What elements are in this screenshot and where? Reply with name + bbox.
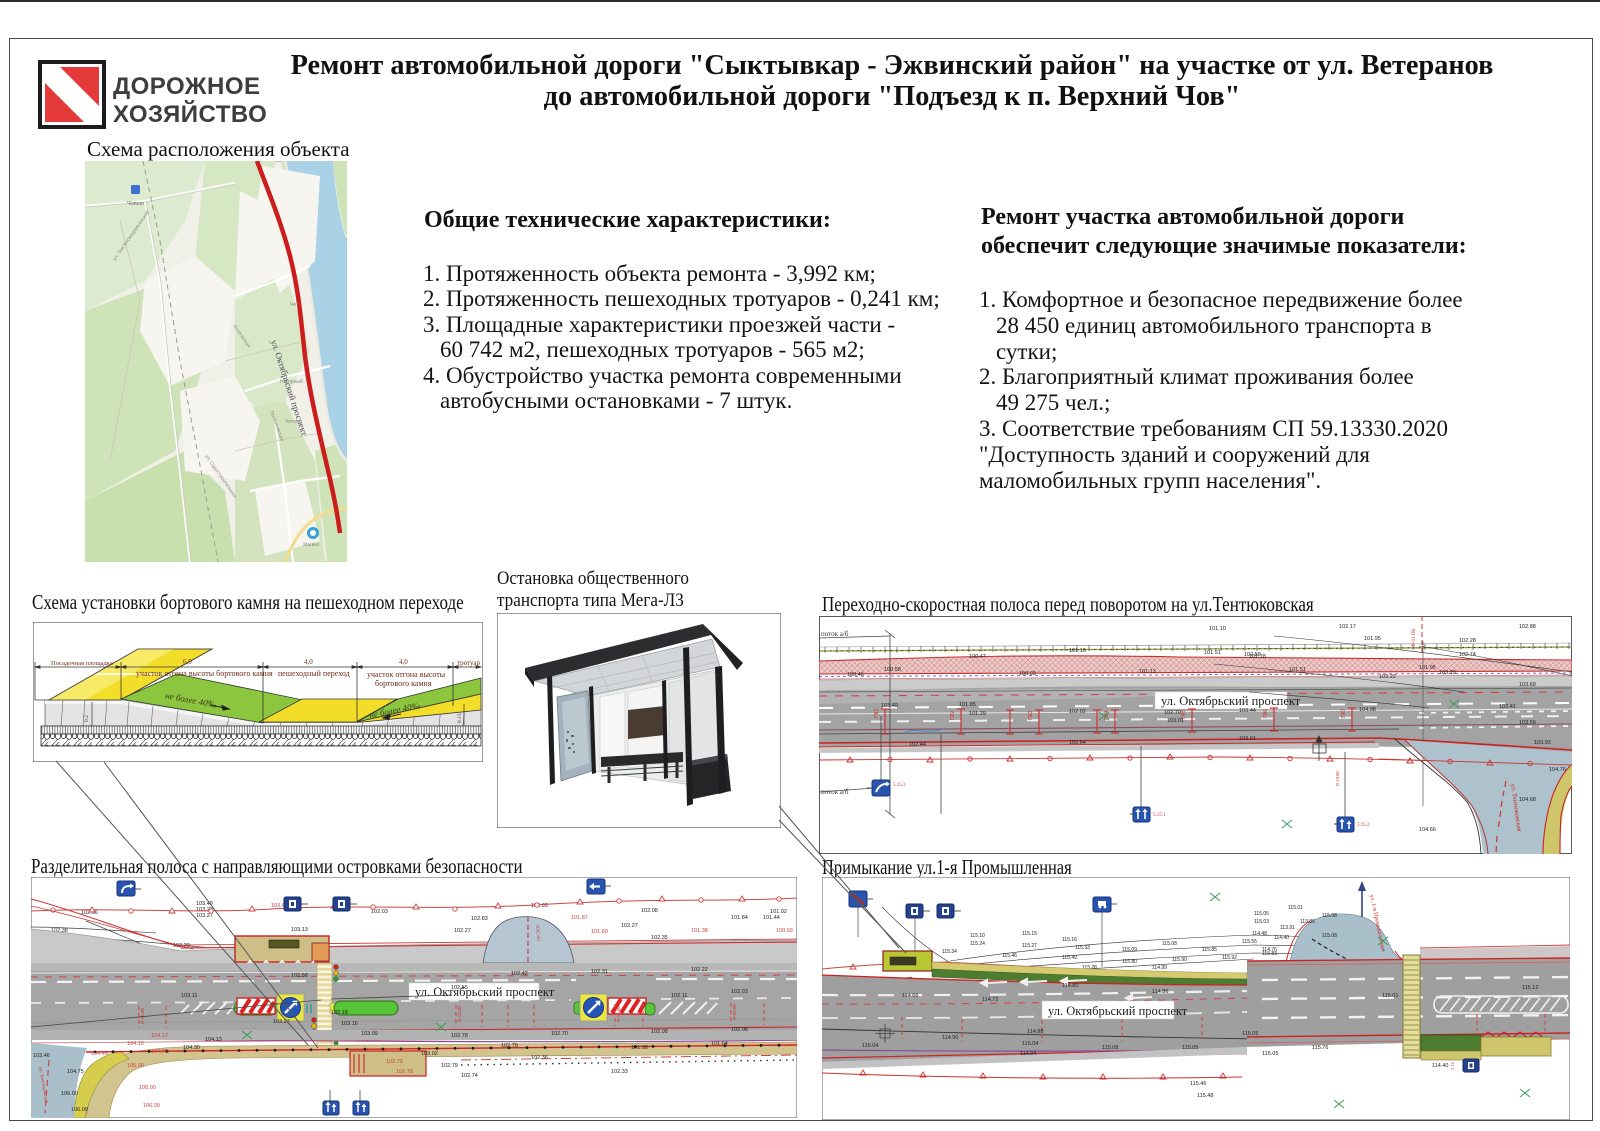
svg-text:5.16: 5.16 xyxy=(1450,1061,1455,1070)
svg-text:114.66: 114.66 xyxy=(902,993,918,999)
svg-text:102.78: 102.78 xyxy=(451,1033,468,1039)
svg-text:104.45: 104.45 xyxy=(91,1051,108,1057)
svg-text:104.75: 104.75 xyxy=(151,1049,168,1055)
svg-text:115.55: 115.55 xyxy=(1242,939,1257,945)
svg-text:101.78: 101.78 xyxy=(1249,654,1266,660)
svg-text:114.90: 114.90 xyxy=(942,1035,958,1041)
svg-text:Чит: Чит xyxy=(290,302,299,308)
svg-text:102.08: 102.08 xyxy=(731,1027,748,1033)
svg-text:103.27: 103.27 xyxy=(196,913,213,919)
svg-text:ул. Октябрьский проспект: ул. Октябрьский проспект xyxy=(1048,1004,1188,1018)
svg-text:101.87: 101.87 xyxy=(571,915,588,921)
svg-text:ПК7: ПК7 xyxy=(1341,708,1347,718)
svg-text:114.94: 114.94 xyxy=(1020,1051,1036,1057)
svg-text:4,0: 4,0 xyxy=(399,658,408,666)
svg-text:115.01: 115.01 xyxy=(1382,993,1398,999)
svg-text:101.13: 101.13 xyxy=(1139,669,1156,675)
svg-text:115.05: 115.05 xyxy=(1262,1051,1278,1057)
svg-text:101.13: 101.13 xyxy=(1069,648,1086,654)
svg-text:поток а/б: поток а/б xyxy=(821,788,849,796)
svg-text:103.44: 103.44 xyxy=(1239,708,1256,714)
svg-text:104.68: 104.68 xyxy=(1519,797,1536,803)
svg-text:102.44: 102.44 xyxy=(909,742,926,748)
svg-text:102.08: 102.08 xyxy=(651,1029,668,1035)
svg-text:114.40: 114.40 xyxy=(1274,935,1289,941)
svg-text:103.69: 103.69 xyxy=(1519,682,1536,688)
svg-text:102.03: 102.03 xyxy=(371,909,388,915)
svg-text:114.80: 114.80 xyxy=(1062,983,1078,989)
svg-text:102.17: 102.17 xyxy=(1339,624,1356,630)
svg-text:104.76: 104.76 xyxy=(1549,767,1566,773)
svg-text:104.66: 104.66 xyxy=(1419,827,1436,833)
svg-text:101.29: 101.29 xyxy=(969,711,986,717)
svg-text:Магнит: Магнит xyxy=(303,543,320,548)
svg-text:115.49: 115.49 xyxy=(1062,955,1077,961)
svg-text:5.15.1: 5.15.1 xyxy=(1153,813,1166,818)
svg-text:104.12: 104.12 xyxy=(151,1033,168,1039)
svg-text:101.98: 101.98 xyxy=(631,1045,648,1051)
svg-text:102.03: 102.03 xyxy=(731,989,748,995)
svg-text:115.08: 115.08 xyxy=(1322,933,1337,939)
svg-text:102.31: 102.31 xyxy=(591,969,608,975)
svg-text:114.99: 114.99 xyxy=(1152,965,1167,971)
svg-text:R-15.00: R-15.00 xyxy=(616,1005,621,1022)
svg-text:тротуар: тротуар xyxy=(457,659,481,667)
svg-text:102.02: 102.02 xyxy=(1069,709,1086,715)
svg-text:102.88: 102.88 xyxy=(1519,624,1536,630)
svg-text:113.86: 113.86 xyxy=(1300,919,1315,925)
svg-text:102.33: 102.33 xyxy=(611,1069,628,1075)
svg-text:101.85: 101.85 xyxy=(959,702,976,708)
svg-text:102.64: 102.64 xyxy=(1069,740,1086,746)
svg-text:114.48: 114.48 xyxy=(1252,931,1267,937)
svg-text:104.75: 104.75 xyxy=(67,1069,84,1075)
svg-text:106.09: 106.09 xyxy=(71,1107,88,1113)
svg-text:114.72: 114.72 xyxy=(982,997,998,1003)
svg-text:Читово: Читово xyxy=(285,419,302,425)
svg-text:R-15.00: R-15.00 xyxy=(457,1005,462,1022)
svg-text:115.01: 115.01 xyxy=(1288,905,1303,911)
svg-text:R-20.00: R-20.00 xyxy=(732,1003,737,1020)
svg-text:103.13: 103.13 xyxy=(291,927,308,933)
svg-text:104.30: 104.30 xyxy=(183,1045,200,1051)
svg-text:участок отгона высоты: участок отгона высоты xyxy=(367,670,446,679)
svg-text:102.78: 102.78 xyxy=(396,1069,413,1075)
svg-text:103.27: 103.27 xyxy=(273,1019,290,1025)
svg-text:103.59: 103.59 xyxy=(1519,720,1536,726)
svg-text:115.48: 115.48 xyxy=(1197,1093,1213,1099)
svg-text:104.10: 104.10 xyxy=(127,1041,144,1047)
svg-text:101.44: 101.44 xyxy=(763,915,780,921)
svg-text:4,0: 4,0 xyxy=(304,658,313,666)
svg-text:102.36: 102.36 xyxy=(531,1055,548,1061)
svg-text:115.08: 115.08 xyxy=(1322,913,1337,919)
svg-text:115.03: 115.03 xyxy=(1254,919,1269,925)
svg-text:106.00: 106.00 xyxy=(139,1085,156,1091)
svg-text:103.18: 103.18 xyxy=(331,1010,348,1016)
svg-text:100.58: 100.58 xyxy=(884,667,901,673)
svg-text:102.42: 102.42 xyxy=(511,971,528,977)
svg-text:102.11: 102.11 xyxy=(671,993,687,999)
svg-text:102.79: 102.79 xyxy=(501,1043,518,1049)
svg-text:115.04: 115.04 xyxy=(862,1043,878,1049)
svg-text:ул. Октябрьский проспект: ул. Октябрьский проспект xyxy=(1161,694,1301,708)
svg-text:поток а/б: поток а/б xyxy=(821,630,849,638)
svg-text:115.80: 115.80 xyxy=(1122,959,1137,965)
svg-text:115.34: 115.34 xyxy=(942,949,957,955)
svg-text:104.08: 104.08 xyxy=(1359,707,1376,713)
svg-text:5.15.3: 5.15.3 xyxy=(893,783,906,788)
svg-text:115.46: 115.46 xyxy=(1002,953,1017,959)
svg-text:103.29: 103.29 xyxy=(1439,670,1456,676)
svg-text:102.08: 102.08 xyxy=(641,908,658,914)
svg-text:115.24: 115.24 xyxy=(970,941,985,947)
svg-text:114.76: 114.76 xyxy=(1262,947,1277,953)
svg-text:100.47: 100.47 xyxy=(969,654,986,660)
svg-text:102.74: 102.74 xyxy=(1459,652,1476,658)
svg-text:106.09: 106.09 xyxy=(143,1103,160,1109)
svg-text:0.15: 0.15 xyxy=(457,713,463,723)
svg-text:105.00: 105.00 xyxy=(127,1063,144,1069)
svg-text:115.33: 115.33 xyxy=(1075,945,1090,951)
svg-text:R-10.00: R-10.00 xyxy=(1335,771,1340,786)
svg-text:101.38: 101.38 xyxy=(691,928,708,934)
svg-text:102.58: 102.58 xyxy=(291,973,308,979)
svg-text:113.91: 113.91 xyxy=(1280,925,1295,931)
svg-text:115.05: 115.05 xyxy=(1254,911,1269,917)
svg-text:ул. Октябрьский проспект: ул. Октябрьский проспект xyxy=(415,985,555,999)
svg-text:Нагорный: Нагорный xyxy=(280,378,303,385)
svg-text:100.46: 100.46 xyxy=(847,672,864,678)
svg-text:100.93: 100.93 xyxy=(776,928,793,934)
svg-text:102.27: 102.27 xyxy=(454,928,471,934)
svg-text:106.00: 106.00 xyxy=(61,1091,78,1097)
svg-text:Посадочная площадка: Посадочная площадка xyxy=(51,660,113,667)
svg-text:115.76: 115.76 xyxy=(1312,1045,1328,1051)
svg-text:ПК2: ПК2 xyxy=(950,710,956,720)
svg-text:ПК3: ПК3 xyxy=(1028,710,1034,720)
svg-text:102.28: 102.28 xyxy=(1459,638,1476,644)
svg-text:бортового камня: бортового камня xyxy=(375,679,432,688)
svg-text:103.02: 103.02 xyxy=(421,1051,438,1057)
svg-text:103.46: 103.46 xyxy=(33,1053,50,1059)
svg-text:Човью: Човью xyxy=(127,201,144,207)
svg-text:5.15.2: 5.15.2 xyxy=(1357,823,1370,828)
svg-text:103.11: 103.11 xyxy=(181,993,197,999)
svg-text:115.46: 115.46 xyxy=(1190,1081,1206,1087)
svg-text:104.13: 104.13 xyxy=(205,1037,222,1043)
svg-text:ПК6: ПК6 xyxy=(1263,708,1269,718)
svg-text:100.93: 100.93 xyxy=(1019,671,1036,677)
svg-text:101.10: 101.10 xyxy=(1209,626,1226,632)
svg-text:ПК1: ПК1 xyxy=(874,708,880,718)
svg-text:102.70: 102.70 xyxy=(1164,710,1181,716)
svg-text:6,0: 6,0 xyxy=(183,658,192,666)
svg-text:115.08: 115.08 xyxy=(1162,941,1177,947)
svg-text:102.79: 102.79 xyxy=(441,1063,458,1069)
svg-text:114.86: 114.86 xyxy=(1152,989,1168,995)
svg-text:101.95: 101.95 xyxy=(1364,636,1381,642)
svg-text:115.15: 115.15 xyxy=(1022,931,1037,937)
svg-text:0.2: 0.2 xyxy=(84,715,90,722)
svg-text:115.92: 115.92 xyxy=(1222,955,1237,961)
svg-text:101.95: 101.95 xyxy=(1419,665,1436,671)
svg-text:114.88: 114.88 xyxy=(1027,1029,1043,1035)
svg-text:115.16: 115.16 xyxy=(1062,937,1077,943)
svg-text:103.22: 103.22 xyxy=(1379,674,1396,680)
svg-text:101.02: 101.02 xyxy=(770,909,787,915)
svg-text:103.01: 103.01 xyxy=(1239,736,1256,742)
svg-text:103.16: 103.16 xyxy=(341,1021,358,1027)
svg-text:102.83: 102.83 xyxy=(471,916,488,922)
svg-text:R-25.00: R-25.00 xyxy=(140,1007,145,1024)
svg-text:102.55: 102.55 xyxy=(451,985,468,991)
svg-text:102.73: 102.73 xyxy=(386,1059,403,1065)
svg-text:102.22: 102.22 xyxy=(691,967,708,973)
svg-text:103.41: 103.41 xyxy=(1499,704,1516,710)
svg-text:101.60: 101.60 xyxy=(591,929,608,935)
svg-text:115.05: 115.05 xyxy=(1242,1031,1258,1037)
svg-text:103.49: 103.49 xyxy=(881,703,898,709)
svg-text:115.05: 115.05 xyxy=(1182,1045,1198,1051)
svg-text:101.51: 101.51 xyxy=(1204,650,1221,656)
svg-text:103.93: 103.93 xyxy=(1534,740,1551,746)
svg-text:пешеходный переход: пешеходный переход xyxy=(278,669,350,678)
svg-text:115.04: 115.04 xyxy=(1022,1041,1038,1047)
svg-text:102.74: 102.74 xyxy=(461,1073,478,1079)
svg-text:115.09: 115.09 xyxy=(1122,947,1137,953)
svg-text:103.01: 103.01 xyxy=(1167,718,1184,724)
svg-text:115.10: 115.10 xyxy=(970,933,985,939)
svg-text:114.40: 114.40 xyxy=(1432,1063,1448,1069)
svg-text:101.84: 101.84 xyxy=(731,915,748,921)
svg-text:участок отгона высоты бортовог: участок отгона высоты бортового камня xyxy=(136,669,273,678)
svg-text:115.85: 115.85 xyxy=(1202,947,1217,953)
svg-text:102.27: 102.27 xyxy=(621,923,638,929)
svg-text:115.12: 115.12 xyxy=(1522,985,1538,991)
svg-text:102.70: 102.70 xyxy=(551,1031,568,1037)
svg-text:115.90: 115.90 xyxy=(1172,957,1187,963)
svg-text:115.08: 115.08 xyxy=(1102,1045,1118,1051)
svg-text:103.09: 103.09 xyxy=(361,1031,378,1037)
svg-text:101.64: 101.64 xyxy=(711,1041,728,1047)
svg-text:115.27: 115.27 xyxy=(1022,943,1037,949)
svg-text:Р-01 ПК: Р-01 ПК xyxy=(1412,628,1417,646)
